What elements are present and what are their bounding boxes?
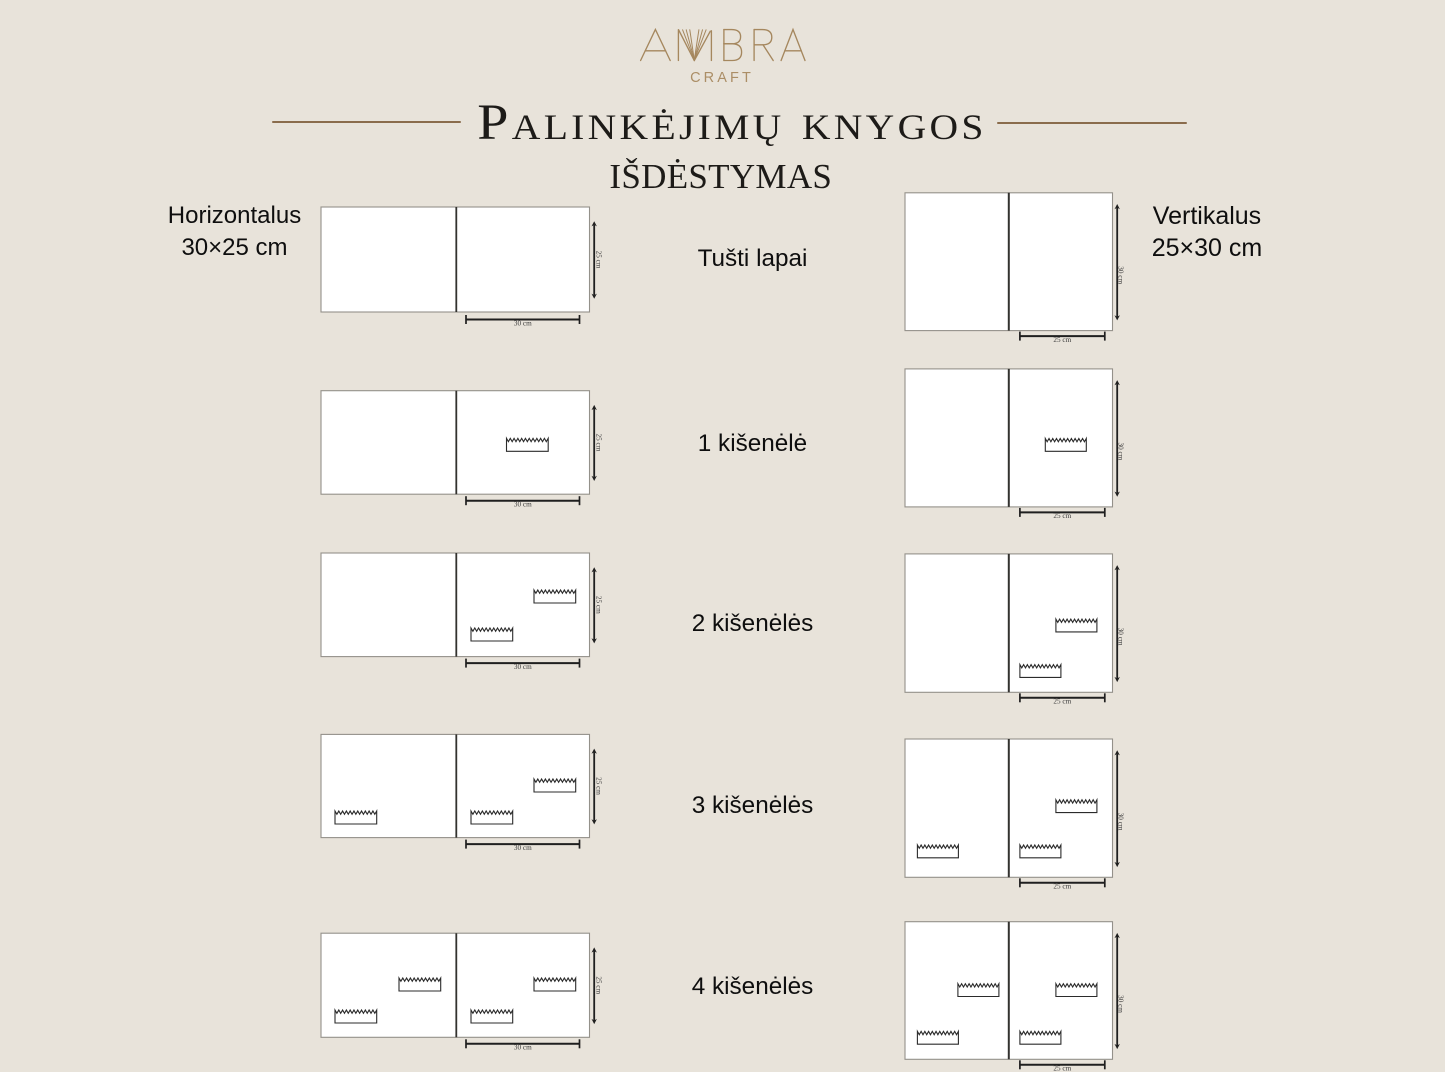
svg-text:30 cm: 30 cm <box>514 844 532 852</box>
svg-text:30 cm: 30 cm <box>514 319 532 327</box>
svg-text:25 cm: 25 cm <box>594 976 602 994</box>
svg-text:30 cm: 30 cm <box>1116 995 1124 1013</box>
svg-text:30 cm: 30 cm <box>514 663 532 671</box>
svg-text:25 cm: 25 cm <box>1053 698 1071 706</box>
svg-text:25 cm: 25 cm <box>1053 883 1071 891</box>
svg-text:25 cm: 25 cm <box>594 434 602 452</box>
svg-text:25 cm: 25 cm <box>1053 1065 1071 1072</box>
svg-text:30 cm: 30 cm <box>514 501 532 509</box>
svg-text:30 cm: 30 cm <box>514 1044 532 1052</box>
svg-text:30 cm: 30 cm <box>1116 628 1124 646</box>
svg-text:25 cm: 25 cm <box>594 777 602 795</box>
svg-text:25 cm: 25 cm <box>594 596 602 614</box>
svg-text:30 cm: 30 cm <box>1116 443 1124 461</box>
svg-text:25 cm: 25 cm <box>594 251 602 269</box>
svg-text:25 cm: 25 cm <box>1053 512 1071 520</box>
svg-text:30 cm: 30 cm <box>1116 266 1124 284</box>
svg-text:30 cm: 30 cm <box>1116 813 1124 831</box>
svg-text:25 cm: 25 cm <box>1053 336 1071 344</box>
